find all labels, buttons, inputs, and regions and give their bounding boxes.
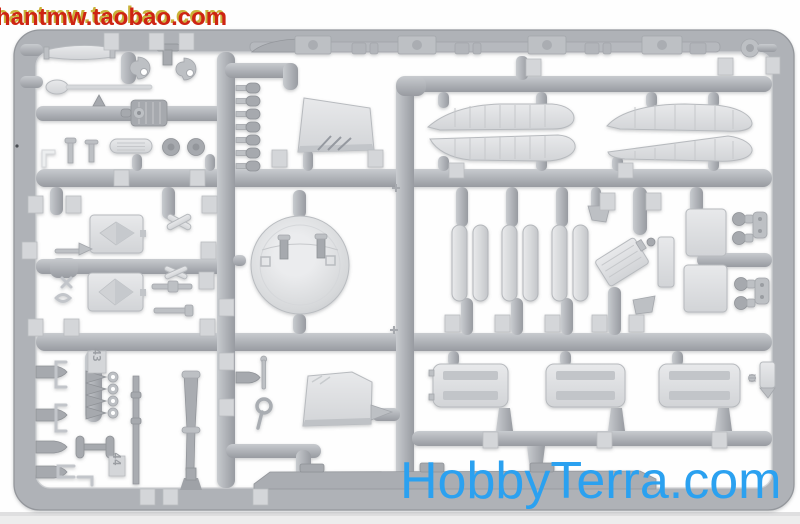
photo-bottom-band: [0, 516, 800, 524]
hatch-knob: [647, 238, 655, 246]
hatch-plate-part: [88, 273, 146, 311]
deck-box-parts: [429, 362, 775, 407]
deck-box: [546, 364, 625, 407]
paddle-part: [46, 80, 68, 94]
watermark-taobao: hantmw.taobao.com hantmw.taobao.com: [0, 2, 227, 31]
flat-plate-part: [684, 265, 727, 312]
watermark-taobao-text: hantmw.taobao.com: [0, 4, 227, 31]
tag-43: 43: [88, 348, 106, 373]
tag-44-label: 44: [110, 452, 123, 466]
grille-part: [110, 139, 152, 153]
pin-part: [261, 356, 267, 389]
panel-part: [658, 237, 674, 287]
sprue-drawing: 43 44 hantmw.taobao.com hantmw.taobao.co…: [0, 0, 800, 524]
sprue-photo: 43 44 hantmw.taobao.com hantmw.taobao.co…: [0, 0, 800, 524]
dust-speck: [15, 144, 18, 147]
deck-box: [659, 364, 740, 407]
hatch-plate-part: [90, 215, 146, 253]
deck-box: [429, 364, 508, 407]
photo-bottom-edge: [0, 512, 800, 516]
plank-part: [46, 45, 112, 59]
watermark-hobbyterra-text: HobbyTerra.com: [400, 452, 781, 510]
tag-43-label: 43: [90, 348, 103, 361]
tag-44: 44: [109, 452, 125, 476]
flat-plate-part: [686, 209, 726, 256]
